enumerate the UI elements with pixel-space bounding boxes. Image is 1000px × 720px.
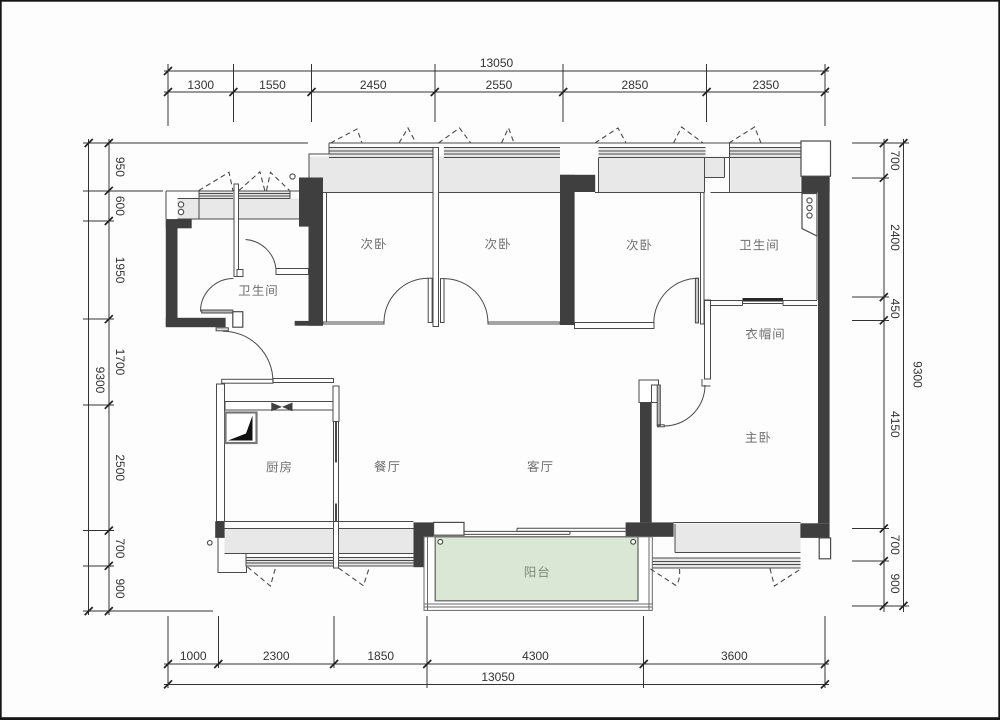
- svg-text:1550: 1550: [259, 78, 286, 92]
- svg-text:9300: 9300: [911, 361, 925, 388]
- svg-text:2500: 2500: [113, 454, 127, 481]
- svg-text:2450: 2450: [360, 78, 387, 92]
- svg-text:900: 900: [888, 573, 902, 593]
- svg-text:1000: 1000: [180, 649, 207, 663]
- svg-text:2300: 2300: [263, 649, 290, 663]
- svg-text:3600: 3600: [721, 649, 748, 663]
- svg-text:2400: 2400: [888, 224, 902, 251]
- svg-text:13050: 13050: [480, 56, 514, 70]
- svg-text:2550: 2550: [486, 78, 513, 92]
- svg-text:2350: 2350: [752, 78, 779, 92]
- svg-text:1950: 1950: [113, 257, 127, 284]
- svg-text:1850: 1850: [367, 649, 394, 663]
- svg-text:13050: 13050: [481, 670, 515, 684]
- svg-text:4150: 4150: [888, 411, 902, 438]
- svg-text:1700: 1700: [113, 349, 127, 376]
- svg-text:700: 700: [888, 535, 902, 555]
- svg-text:600: 600: [113, 196, 127, 216]
- svg-text:900: 900: [113, 578, 127, 598]
- svg-text:2850: 2850: [622, 78, 649, 92]
- svg-text:4300: 4300: [522, 649, 549, 663]
- svg-text:950: 950: [113, 157, 127, 177]
- svg-text:1300: 1300: [187, 78, 214, 92]
- svg-text:450: 450: [888, 299, 902, 319]
- svg-text:700: 700: [888, 150, 902, 170]
- svg-text:700: 700: [113, 538, 127, 558]
- svg-text:9300: 9300: [93, 367, 107, 394]
